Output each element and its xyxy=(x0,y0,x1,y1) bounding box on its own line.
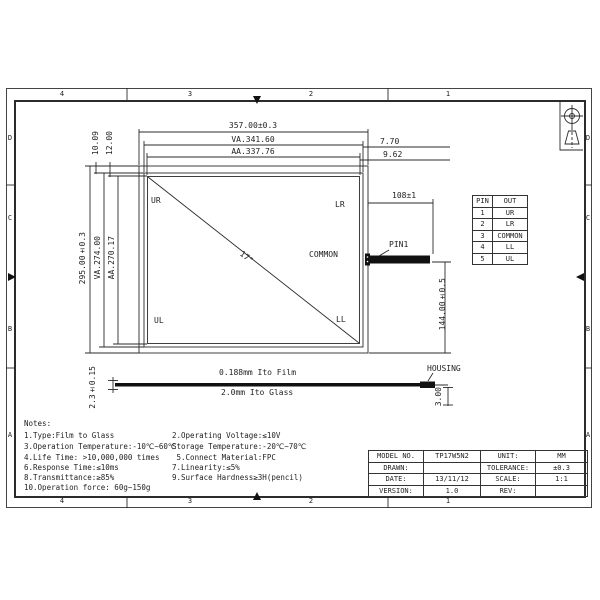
table-row: DATE: 13/11/12 SCALE: 1:1 xyxy=(369,474,588,486)
table-row: 1 UR xyxy=(473,207,528,219)
corner-label-ul: UL xyxy=(154,317,164,326)
drawing-linework xyxy=(0,0,600,600)
dim-housing-height: 3.00 xyxy=(435,387,443,406)
dim-aa-height: AA.270.17 xyxy=(108,236,116,279)
housing-section xyxy=(420,382,435,389)
table-row: VERSION: 1.0 REV: xyxy=(369,485,588,497)
pin-signal: COMMON xyxy=(493,230,528,242)
corner-label-ur: UR xyxy=(151,197,161,206)
notes-title: Notes: xyxy=(24,420,51,428)
table-row: 2 LR xyxy=(473,219,528,231)
note-line: 2.Operating Voltage:≤10V xyxy=(172,432,280,440)
note-line: 1.Type:Film to Glass xyxy=(24,432,114,440)
pin-number: 2 xyxy=(473,219,493,231)
rev-value xyxy=(536,485,588,497)
dim-aa-width: AA.337.76 xyxy=(231,148,274,157)
unit-value: MM xyxy=(536,451,588,463)
dim-total-width: 357.00±0.3 xyxy=(229,122,277,131)
title-block-label: SCALE: xyxy=(481,474,536,486)
table-row: 3 COMMON xyxy=(473,230,528,242)
table-row: DRAWN: TOLERANCE: ±0.3 xyxy=(369,462,588,474)
pin1-leader xyxy=(379,250,389,256)
pin-signal: LL xyxy=(493,242,528,254)
dim-top-va-offset: 10.09 xyxy=(92,131,100,155)
corner-label-ll: LL xyxy=(336,316,346,325)
frustum-icon xyxy=(565,127,579,148)
pin-table-header: OUT xyxy=(493,196,528,208)
note-line: 4.Life Time: >10,000,000 times xyxy=(24,454,159,462)
center-mark-right xyxy=(576,273,584,281)
note-line: 7.Linearity:≤5% xyxy=(172,464,240,472)
corner-label-lr: LR xyxy=(335,201,345,210)
table-row: 4 LL xyxy=(473,242,528,254)
glass-section xyxy=(115,383,422,387)
note-line: 5.Connect Material:FPC xyxy=(172,454,276,462)
pin-out-table: PIN OUT 1 UR 2 LR 3 COMMON 4 LL 5 UL xyxy=(472,195,528,265)
dim-top-aa-offset: 12.00 xyxy=(106,131,114,155)
first-angle-projection-symbol xyxy=(560,101,583,150)
table-row: 5 UL xyxy=(473,253,528,265)
drawn-value xyxy=(424,462,481,474)
note-line: 3.Operation Temperature:-10℃~60℃ xyxy=(24,443,176,451)
dim-va-width: VA.341.60 xyxy=(231,136,274,145)
pin1-label: PIN1 xyxy=(389,241,408,250)
pin-number: 4 xyxy=(473,242,493,254)
title-block-label: DRAWN: xyxy=(369,462,424,474)
dim-total-height: 295.00±0.3 xyxy=(79,232,87,284)
glass-label: 2.0mm Ito Glass xyxy=(221,389,293,398)
tolerance-value: ±0.3 xyxy=(536,462,588,474)
scale-value: 1:1 xyxy=(536,474,588,486)
model-number: TP17W5N2 xyxy=(424,451,481,463)
center-mark-left xyxy=(8,273,16,281)
title-block-label: UNIT: xyxy=(481,451,536,463)
pin-number: 5 xyxy=(473,253,493,265)
pin-signal: UR xyxy=(493,207,528,219)
note-line: 9.Surface Hardness≥3H(pencil) xyxy=(172,474,303,482)
pin-signal: LR xyxy=(493,219,528,231)
dim-right-va-offset: 7.70 xyxy=(380,138,399,147)
pin-number: 1 xyxy=(473,207,493,219)
dim-right-aa-offset: 9.62 xyxy=(383,151,402,160)
note-line: 10.Operation force: 60g~150g xyxy=(24,484,150,492)
center-mark-bottom xyxy=(253,492,261,500)
title-block-label: TOLERANCE: xyxy=(481,462,536,474)
title-block: MODEL NO. TP17W5N2 UNIT: MM DRAWN: TOLER… xyxy=(368,450,583,497)
pin-table-header: PIN xyxy=(473,196,493,208)
title-block-label: DATE: xyxy=(369,474,424,486)
center-mark-top xyxy=(253,96,261,104)
version-value: 1.0 xyxy=(424,485,481,497)
note-line: Storage Temperature:-20℃~70℃ xyxy=(172,443,306,451)
title-block-label: VERSION: xyxy=(369,485,424,497)
pin-number: 3 xyxy=(473,230,493,242)
date-value: 13/11/12 xyxy=(424,474,481,486)
dim-tail-length: 108±1 xyxy=(392,192,416,201)
target-crosshair-icon xyxy=(561,105,583,127)
note-line: 8.Transmittance:≥85% xyxy=(24,474,114,482)
dim-tail-position: 144.00±0.5 xyxy=(439,278,447,330)
right-offset-dimensions xyxy=(360,147,450,160)
dim-va-height: VA.274.00 xyxy=(94,236,102,279)
note-line: 6.Response Time:≤10ms xyxy=(24,464,119,472)
housing-label: HOUSING xyxy=(427,365,461,374)
table-row: MODEL NO. TP17W5N2 UNIT: MM xyxy=(369,451,588,463)
engineering-drawing-sheet: 4 3 2 1 4 3 2 1 D C B A D C B A xyxy=(0,0,600,600)
title-block-label: REV: xyxy=(481,485,536,497)
common-label: COMMON xyxy=(309,251,338,260)
film-label: 0.188mm Ito Film xyxy=(219,369,296,378)
dim-stack-thickness: 2.3±0.15 xyxy=(89,366,97,409)
title-block-label: MODEL NO. xyxy=(369,451,424,463)
housing-leader xyxy=(428,373,433,381)
pin-signal: UL xyxy=(493,253,528,265)
